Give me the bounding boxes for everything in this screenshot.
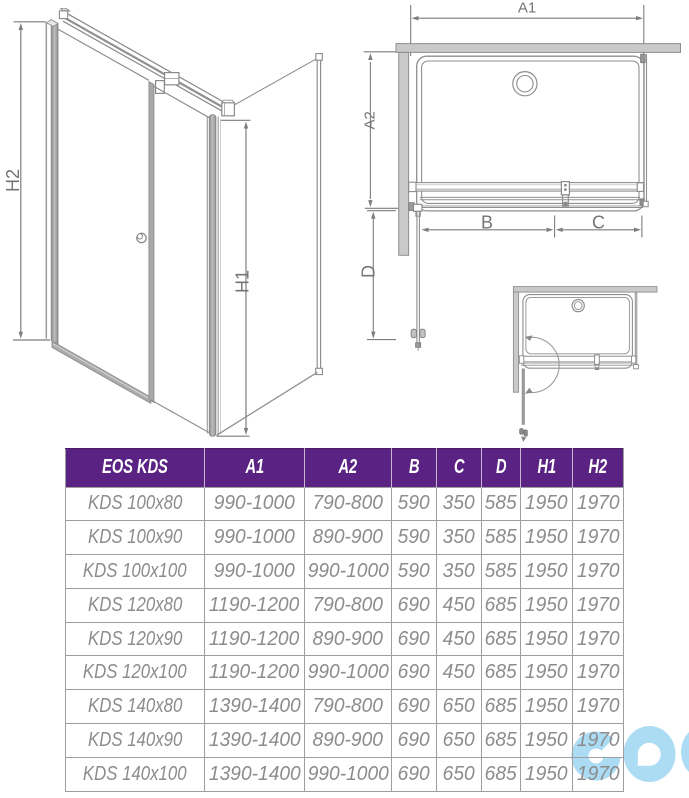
svg-text:C: C	[592, 213, 605, 233]
svg-text:D: D	[359, 265, 379, 278]
svg-text:H1: H1	[233, 270, 253, 293]
svg-text:A1: A1	[518, 0, 536, 17]
svg-text:A2: A2	[362, 111, 379, 129]
svg-text:B: B	[481, 213, 493, 233]
svg-text:H2: H2	[3, 169, 23, 192]
